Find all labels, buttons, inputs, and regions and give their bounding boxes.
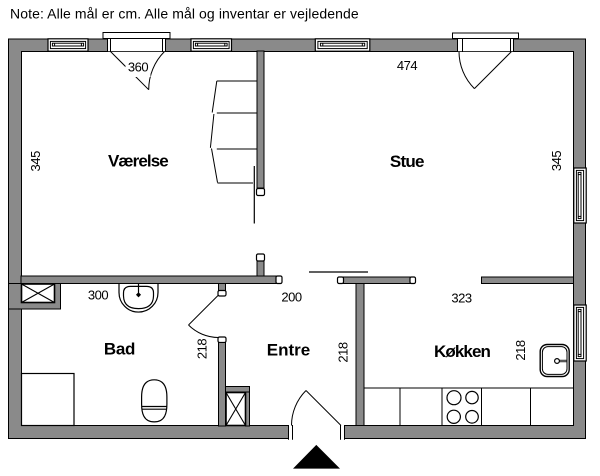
svg-text:Entre: Entre bbox=[267, 341, 310, 360]
svg-text:218: 218 bbox=[513, 340, 528, 361]
svg-text:Note: Alle mål er cm. Alle mål: Note: Alle mål er cm. Alle mål og invent… bbox=[10, 6, 359, 22]
svg-text:360: 360 bbox=[128, 60, 149, 75]
svg-text:218: 218 bbox=[195, 339, 210, 360]
svg-text:Køkken: Køkken bbox=[434, 342, 491, 361]
svg-text:Værelse: Værelse bbox=[108, 152, 168, 171]
svg-text:Stue: Stue bbox=[390, 152, 424, 171]
svg-text:474: 474 bbox=[397, 58, 418, 73]
svg-text:218: 218 bbox=[336, 342, 351, 363]
svg-text:345: 345 bbox=[549, 151, 564, 172]
svg-text:345: 345 bbox=[28, 151, 43, 172]
svg-text:300: 300 bbox=[88, 288, 109, 303]
svg-text:323: 323 bbox=[451, 291, 472, 306]
svg-text:Bad: Bad bbox=[104, 340, 135, 359]
svg-text:200: 200 bbox=[281, 290, 302, 305]
